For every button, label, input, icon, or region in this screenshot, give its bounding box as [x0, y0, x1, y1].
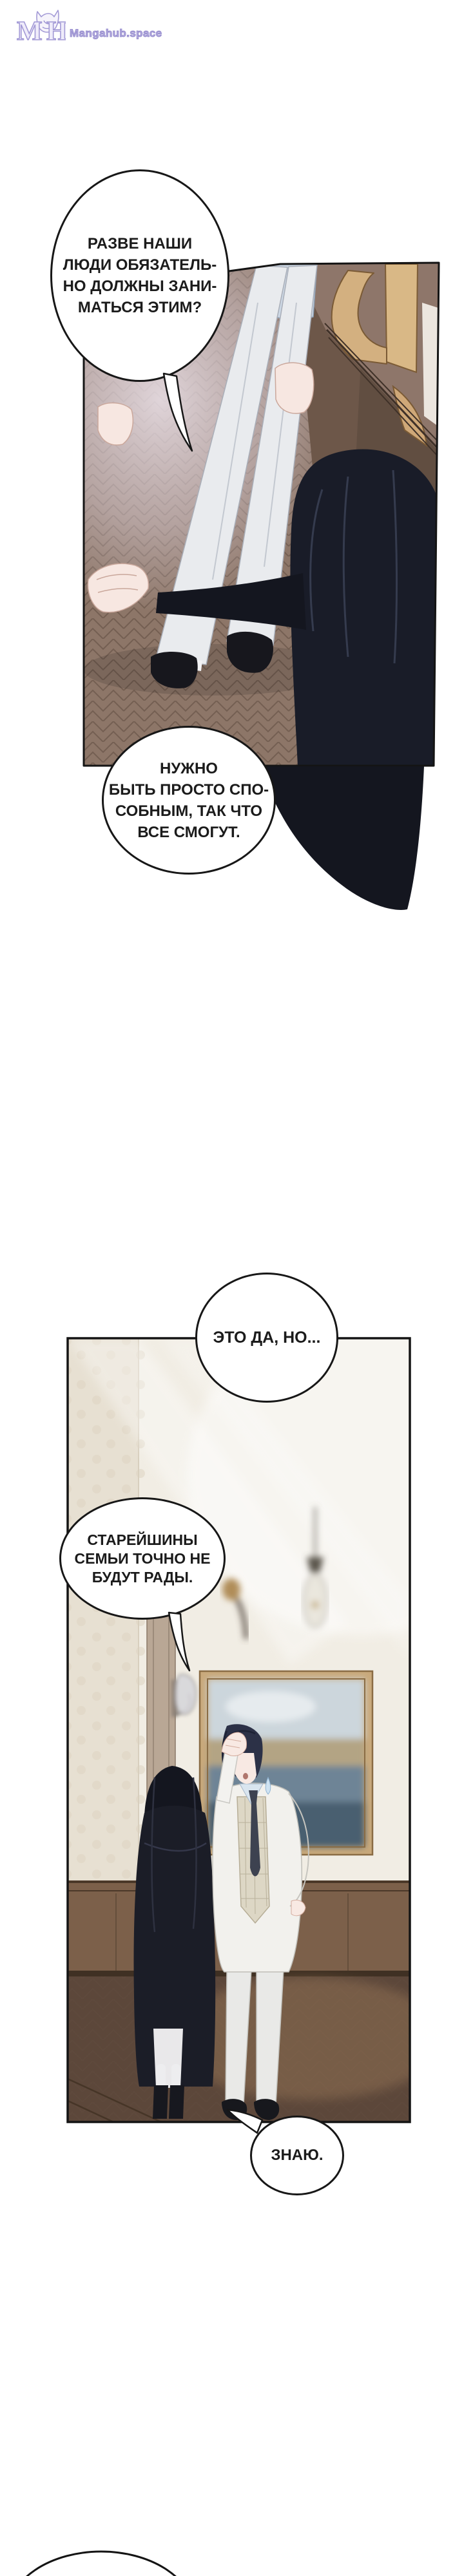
logo-letter-m: M [17, 17, 43, 41]
bubble-line: СОБНЫМ, ТАК ЧТО [115, 800, 262, 822]
bubble-line: СЕМЬИ ТОЧНО НЕ [75, 1549, 211, 1568]
panel-2-artwork [68, 1314, 464, 2122]
bubble-line: ЗНАЮ. [271, 2146, 323, 2164]
logo-letter-h: H [46, 17, 66, 41]
bubble-line: БЫТЬ ПРОСТО СПО- [109, 779, 269, 800]
site-header: M H Mangahub.space [15, 8, 162, 41]
speech-bubble-3: ЭТО ДА, НО... [195, 1273, 338, 1403]
speech-bubble-1: РАЗВЕ НАШИ ЛЮДИ ОБЯЗАТЕЛЬ- НО ДОЛЖНЫ ЗАН… [50, 169, 229, 382]
bubble-line: СТАРЕЙШИНЫ [87, 1531, 197, 1549]
bubble-line: РАЗВЕ НАШИ [88, 233, 192, 254]
bubble-tail [155, 368, 200, 455]
bubble-line: ВСЕ СМОГУТ. [137, 822, 240, 843]
bubble-tail [222, 2106, 267, 2137]
bubble-line: НУЖНО [160, 758, 218, 779]
speech-bubble-4: СТАРЕЙШИНЫ СЕМЬИ ТОЧНО НЕ БУДУТ РАДЫ. [59, 1497, 226, 1620]
mangahub-logo-icon: M H [15, 8, 66, 41]
woman-figure [134, 1766, 216, 2119]
bubble-line: МАТЬСЯ ЭТИМ? [78, 297, 202, 318]
dress-bleed [260, 766, 424, 910]
bubble-tail [161, 1607, 197, 1675]
bubble-line: ЛЮДИ ОБЯЗАТЕЛЬ- [63, 254, 217, 276]
partial-bubble-next [8, 2552, 195, 2576]
speech-bubble-2: НУЖНО БЫТЬ ПРОСТО СПО- СОБНЫМ, ТАК ЧТО В… [102, 726, 276, 875]
bubble-line: БУДУТ РАДЫ. [92, 1568, 193, 1587]
site-name: Mangahub.space [70, 28, 162, 41]
bubble-line: НО ДОЛЖНЫ ЗАНИ- [63, 276, 217, 297]
webtoon-page: M H Mangahub.space [0, 0, 464, 2576]
bubble-line: ЭТО ДА, НО... [213, 1328, 321, 1347]
